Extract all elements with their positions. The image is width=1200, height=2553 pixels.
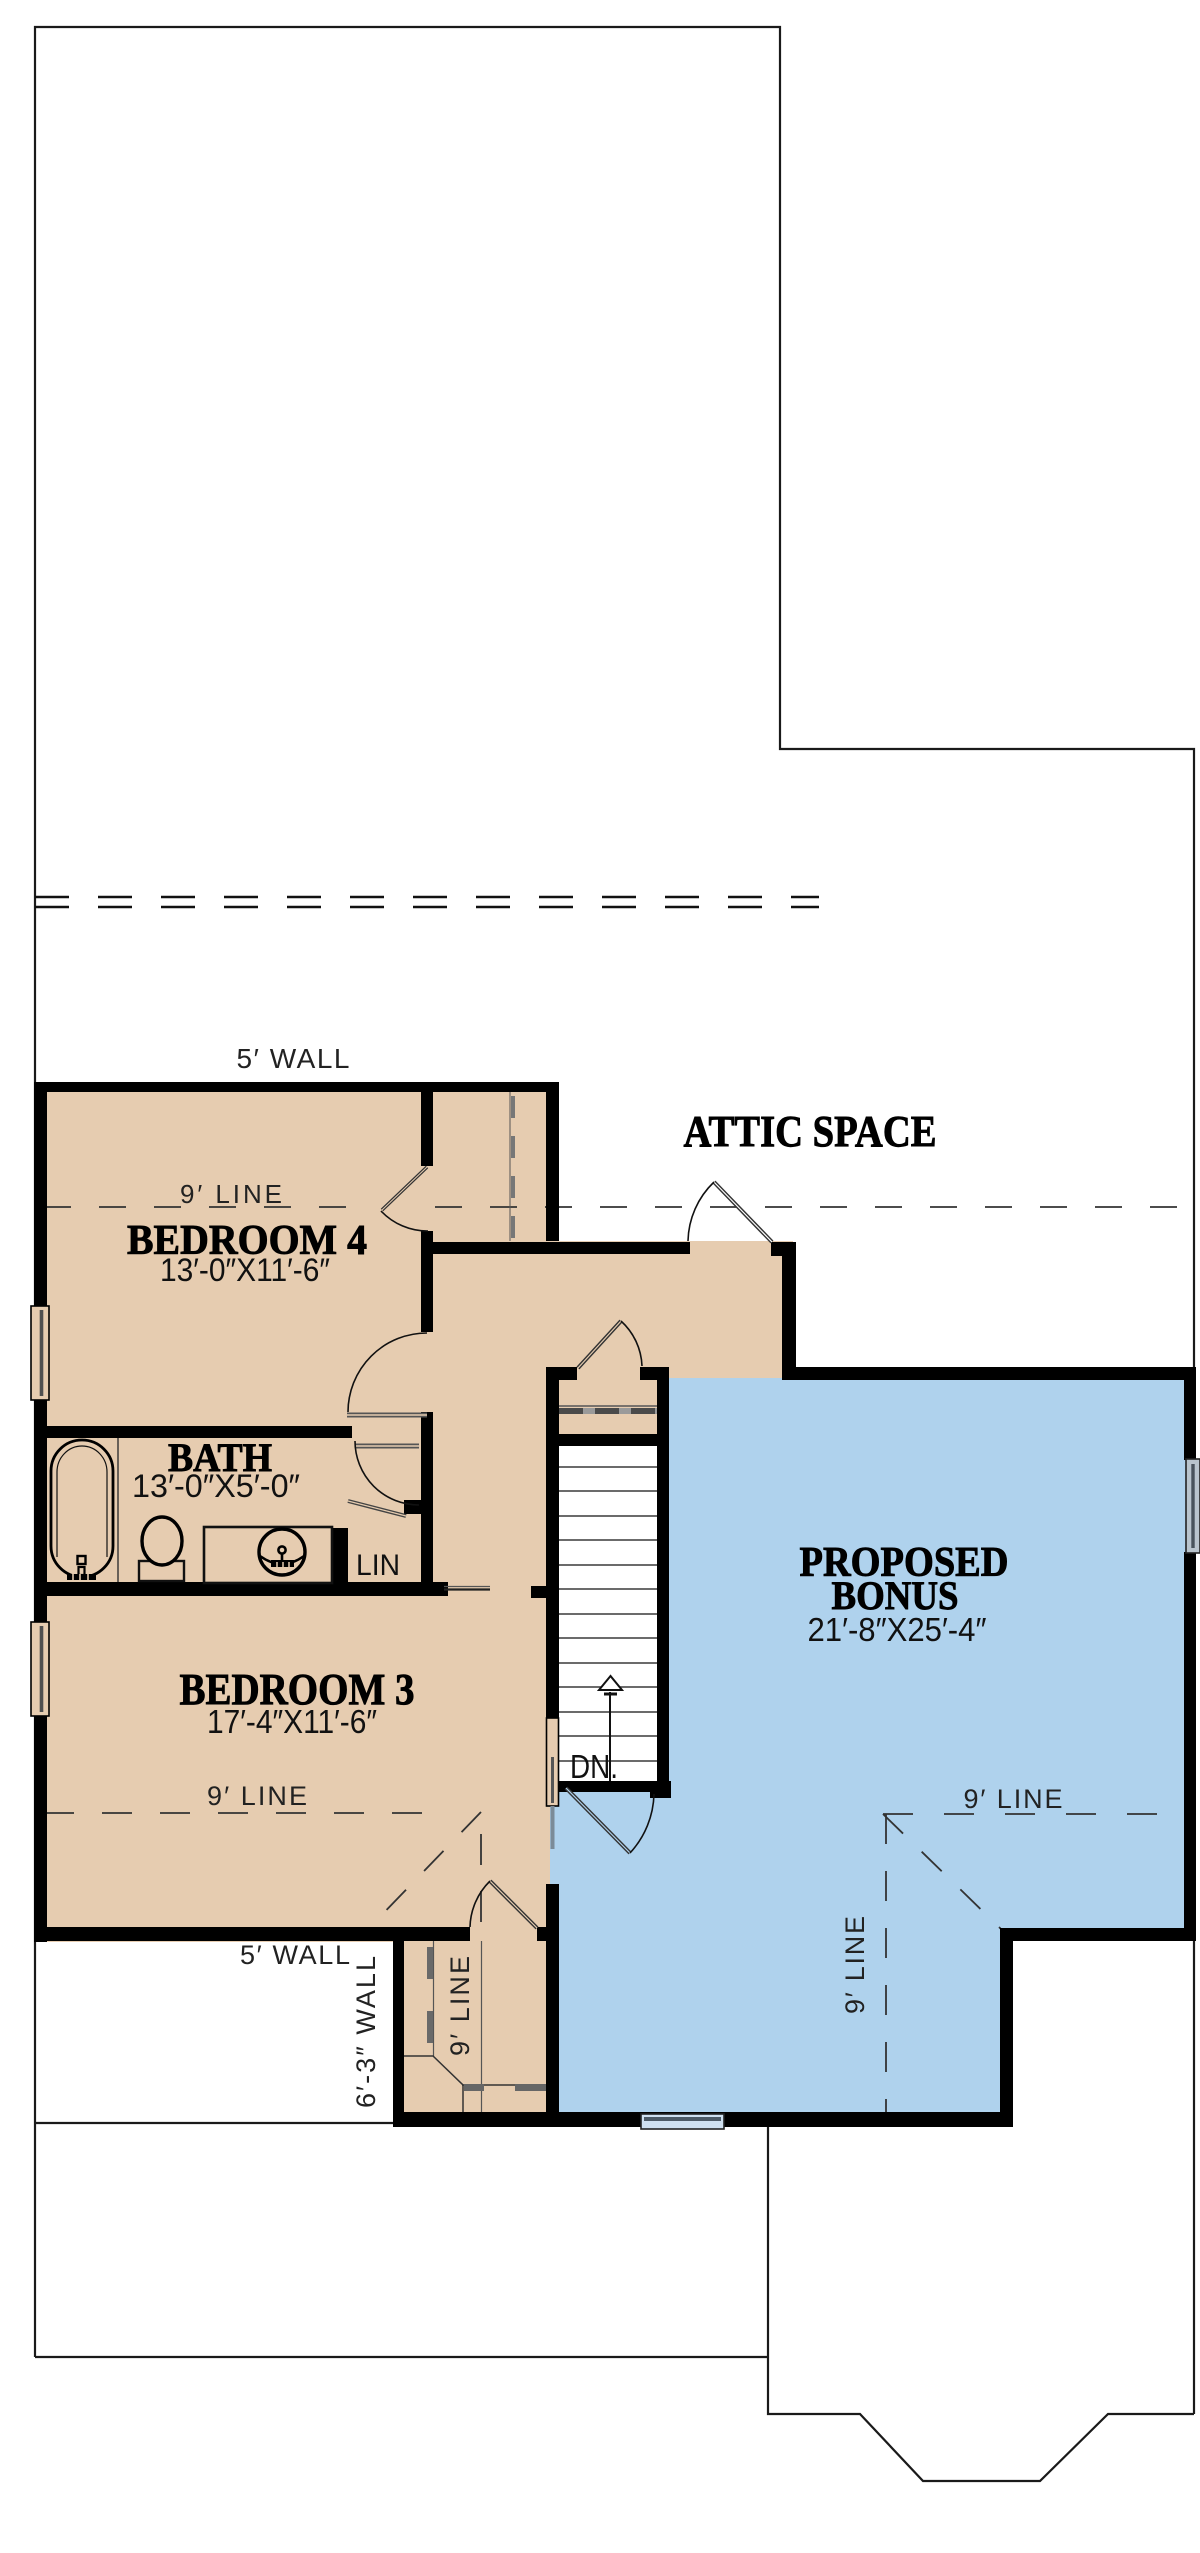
svg-text:9′ LINE: 9′ LINE [964,1784,1063,1814]
svg-text:DN.: DN. [570,1748,618,1785]
svg-text:9′ LINE: 9′ LINE [840,1916,870,2014]
svg-text:13′-0″X5′-0″: 13′-0″X5′-0″ [132,1468,300,1504]
svg-text:9′ LINE: 9′ LINE [445,1956,475,2056]
svg-text:9′ LINE: 9′ LINE [207,1781,307,1811]
svg-text:21′-8″X25′-4″: 21′-8″X25′-4″ [808,1611,987,1648]
svg-text:LIN: LIN [356,1549,400,1582]
svg-text:ATTIC SPACE: ATTIC SPACE [684,1107,937,1156]
svg-text:13′-0″X11′-6″: 13′-0″X11′-6″ [160,1252,330,1288]
svg-text:17′-4″X11′-6″: 17′-4″X11′-6″ [207,1703,377,1740]
